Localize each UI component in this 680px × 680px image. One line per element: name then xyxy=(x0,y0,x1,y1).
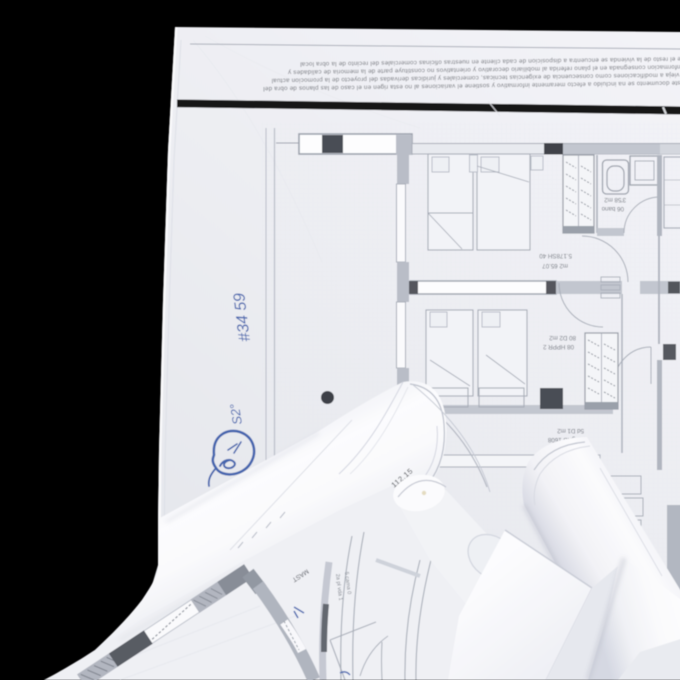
svg-text:80 D2 m2: 80 D2 m2 xyxy=(549,334,576,341)
svg-text:08 HPPR 2: 08 HPPR 2 xyxy=(542,343,574,350)
svg-text:m2 65.07: m2 65.07 xyxy=(542,262,568,269)
svg-text:5d D1 m2: 5d D1 m2 xyxy=(557,427,584,434)
svg-text:5.178SH 40: 5.178SH 40 xyxy=(539,252,572,259)
svg-text:3'58 m2: 3'58 m2 xyxy=(604,196,626,203)
svg-text:06 bano: 06 bano xyxy=(601,205,624,212)
